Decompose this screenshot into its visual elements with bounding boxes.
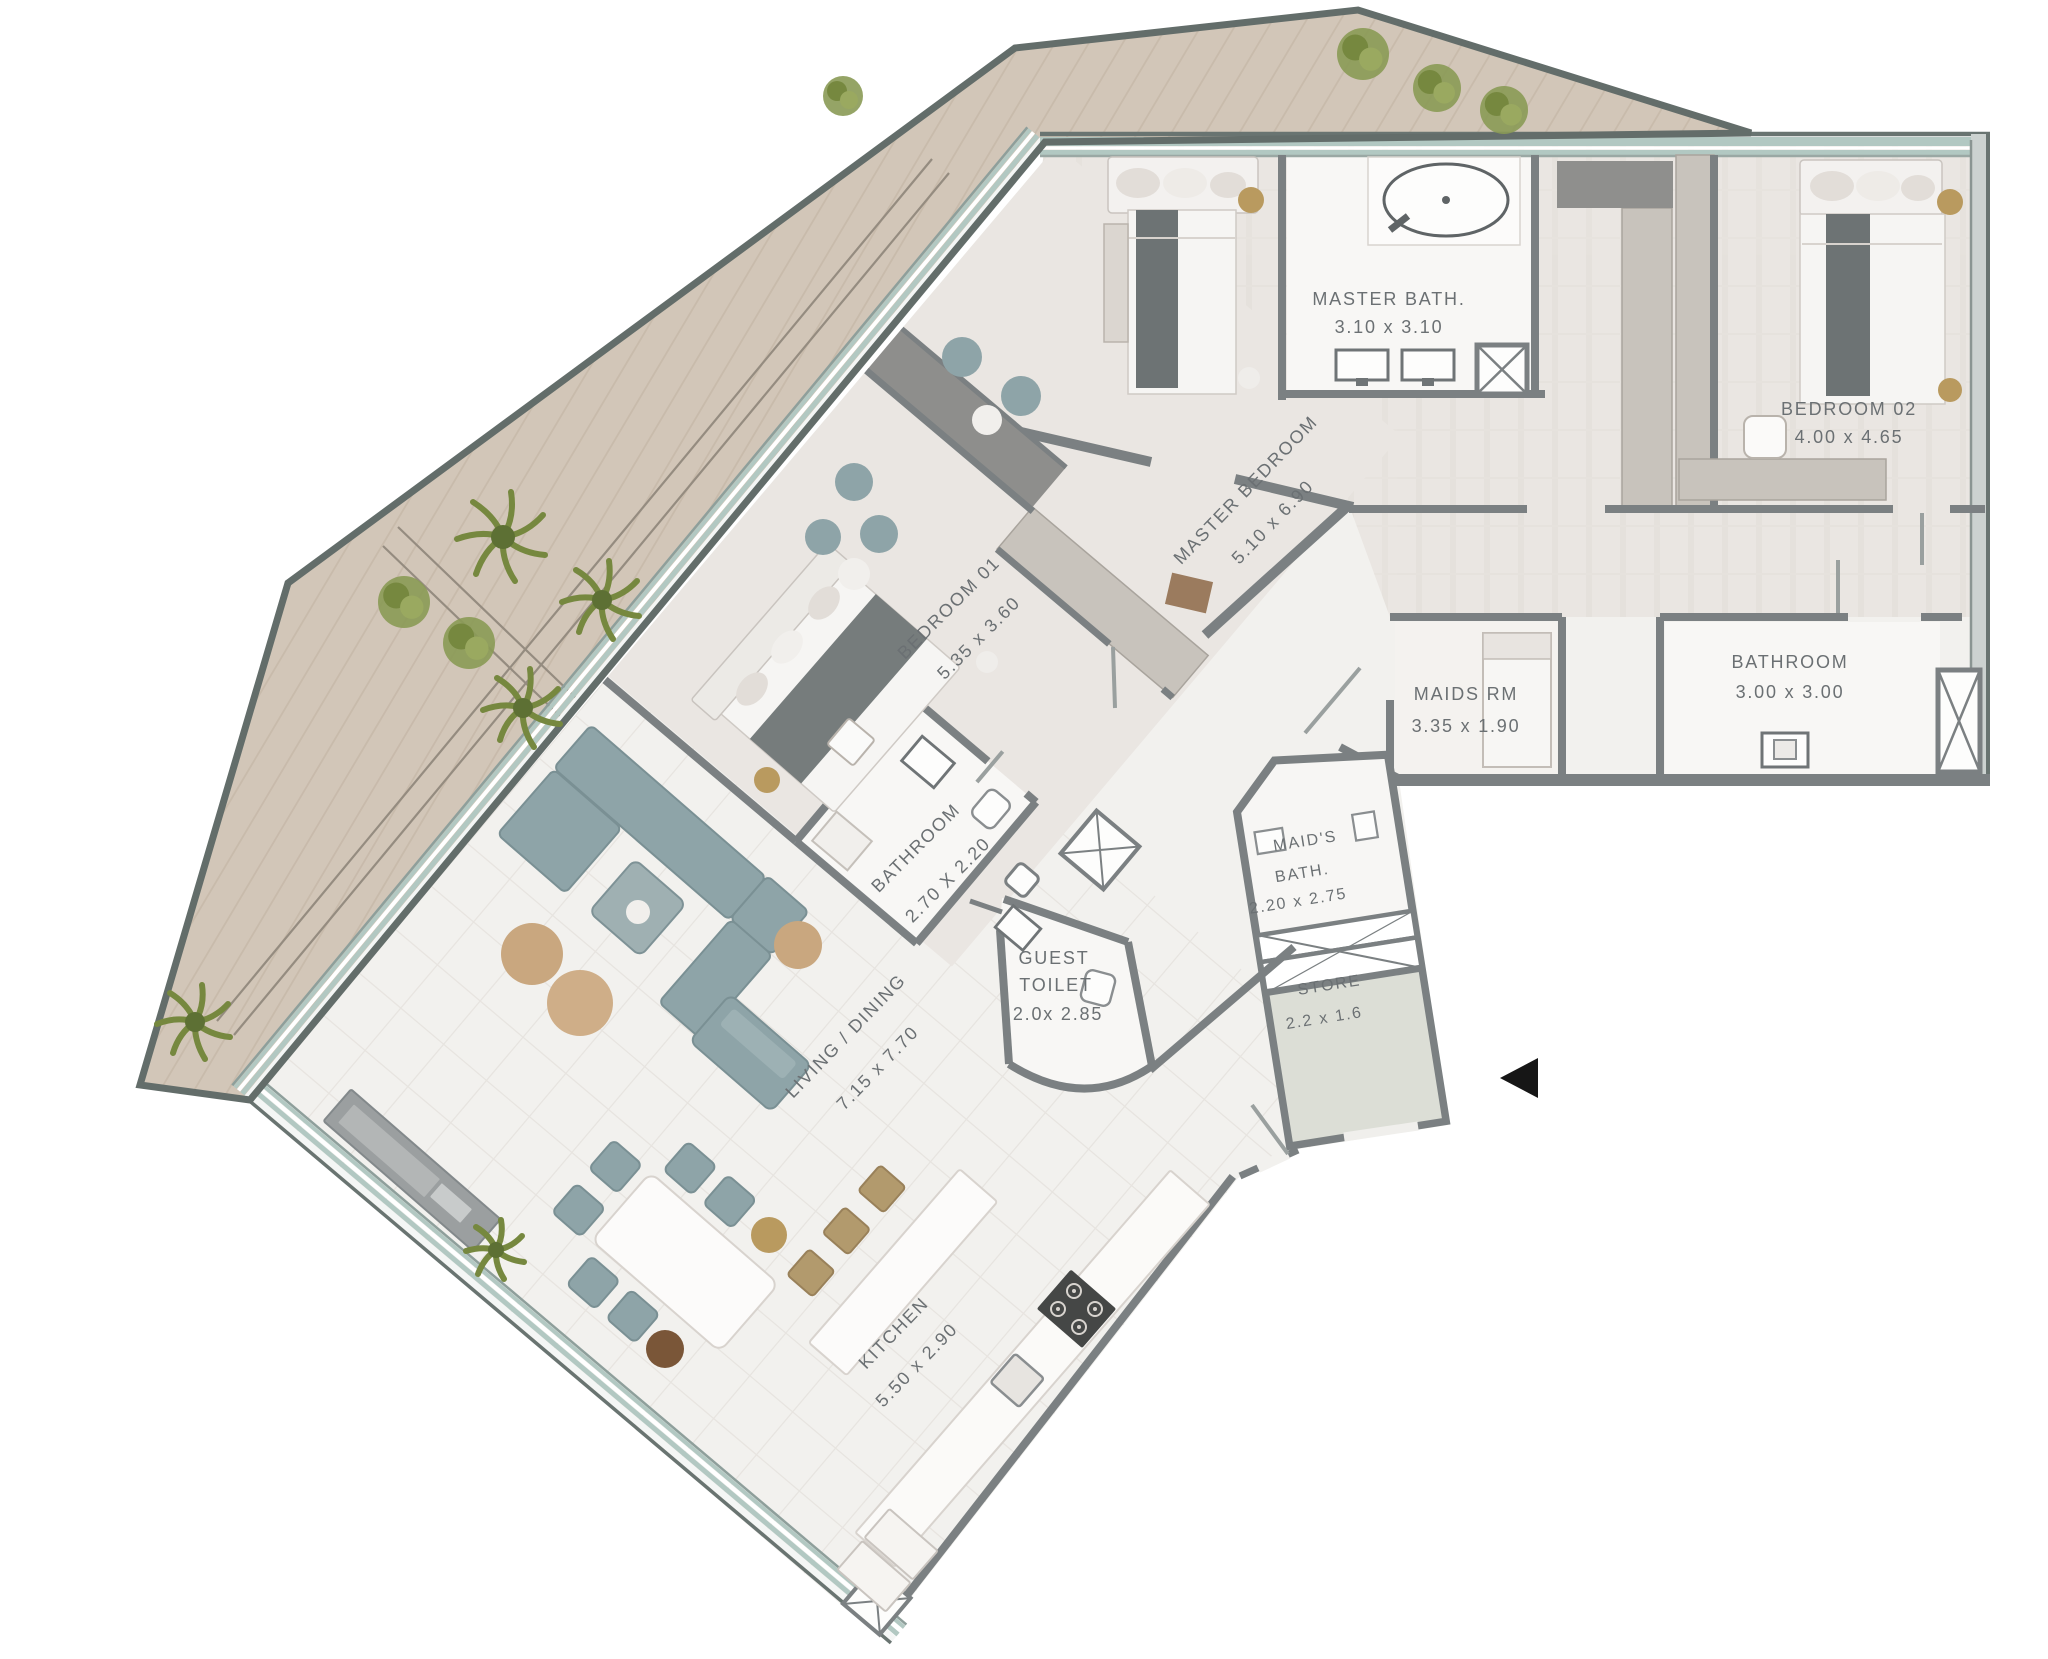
svg-text:BATHROOM: BATHROOM: [1731, 652, 1848, 672]
svg-text:BEDROOM 02: BEDROOM 02: [1781, 399, 1917, 419]
svg-text:4.00 x 4.65: 4.00 x 4.65: [1795, 427, 1904, 447]
svg-text:2.0x 2.85: 2.0x 2.85: [1013, 1004, 1103, 1024]
svg-text:3.00 x 3.00: 3.00 x 3.00: [1736, 682, 1845, 702]
svg-text:TOILET: TOILET: [1019, 975, 1092, 995]
svg-text:MAIDS RM: MAIDS RM: [1414, 684, 1518, 704]
svg-text:3.10 x 3.10: 3.10 x 3.10: [1335, 317, 1444, 337]
svg-text:MASTER BATH.: MASTER BATH.: [1312, 289, 1465, 309]
svg-text:3.35 x 1.90: 3.35 x 1.90: [1412, 716, 1521, 736]
svg-text:GUEST: GUEST: [1018, 948, 1089, 968]
